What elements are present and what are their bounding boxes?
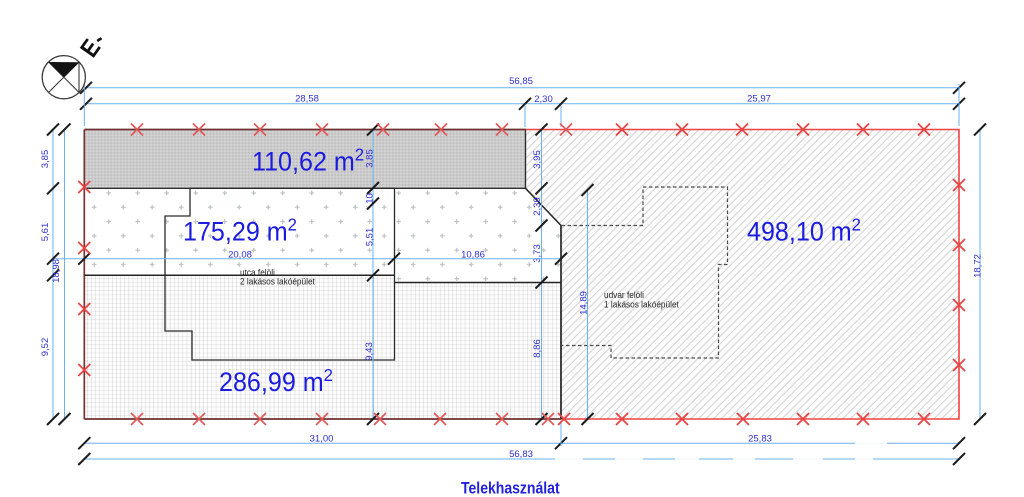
svg-text:28,58: 28,58 (295, 93, 319, 104)
svg-text:14,89: 14,89 (579, 291, 590, 315)
svg-text:2,39: 2,39 (532, 197, 543, 216)
svg-text:3,73: 3,73 (532, 244, 543, 263)
svg-text:5,61: 5,61 (40, 223, 51, 242)
svg-text:25,83: 25,83 (748, 434, 772, 445)
svg-text:2,30: 2,30 (534, 94, 553, 105)
svg-text:18,98: 18,98 (51, 259, 62, 283)
svg-text:56,85: 56,85 (509, 76, 533, 87)
svg-text:3,85: 3,85 (365, 149, 376, 168)
svg-text:25,97: 25,97 (747, 93, 771, 104)
svg-text:175,29 m2: 175,29 m2 (183, 214, 297, 247)
svg-text:2 lakásos lakóépület: 2 lakásos lakóépület (240, 276, 315, 286)
svg-text:286,99 m2: 286,99 m2 (219, 364, 333, 397)
svg-text:31,00: 31,00 (310, 434, 334, 445)
svg-text:498,10 m2: 498,10 m2 (747, 214, 861, 247)
svg-text:8,86: 8,86 (532, 339, 543, 358)
svg-text:3,85: 3,85 (40, 150, 51, 169)
svg-text:3,95: 3,95 (532, 150, 543, 169)
svg-text:Telekhasználat: Telekhasználat (461, 479, 560, 497)
svg-text:56,83: 56,83 (509, 449, 533, 460)
svg-text:5,51: 5,51 (365, 228, 376, 247)
svg-text:9,43: 9,43 (364, 342, 375, 361)
svg-text:1 lakásos lakóépület: 1 lakásos lakóépület (604, 299, 679, 309)
svg-text:9,52: 9,52 (40, 338, 51, 357)
svg-text:20,08: 20,08 (228, 249, 252, 260)
svg-text:110,62 m2: 110,62 m2 (252, 144, 364, 177)
svg-text:10,86: 10,86 (461, 249, 485, 260)
svg-text:18,72: 18,72 (973, 254, 984, 278)
svg-text:10: 10 (365, 193, 376, 204)
